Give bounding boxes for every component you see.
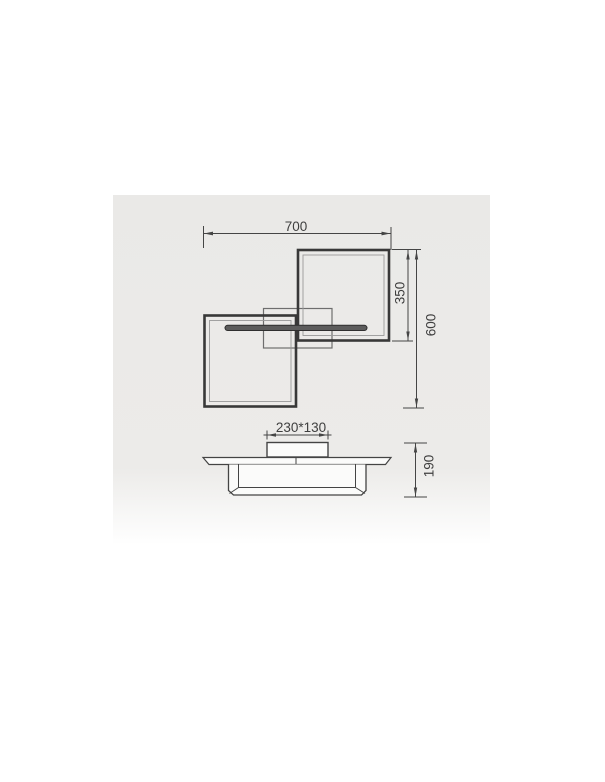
- dim-350-arrow-top: [406, 251, 409, 260]
- dim-700-arrow-left: [204, 232, 213, 236]
- dimension-right-side: [392, 250, 424, 409]
- dim-350-arrow-bottom: [406, 332, 409, 341]
- side-view: 230*130 190: [203, 420, 437, 497]
- canopy-side-view: [267, 443, 328, 458]
- dim-600-arrow-top: [415, 251, 418, 260]
- dim-190-arrow-bottom: [414, 488, 417, 497]
- light-bar: [225, 325, 367, 330]
- dim-700-arrow-right: [382, 232, 391, 236]
- dim-600-label: 600: [424, 314, 439, 337]
- technical-drawing: 700: [0, 0, 605, 782]
- lower-square-inner-edge: [210, 321, 292, 402]
- dim-canopy-arrow-left: [268, 433, 277, 437]
- dim-700-label: 700: [285, 219, 308, 234]
- ceiling-plate: [203, 458, 391, 465]
- dim-600-arrow-bottom: [415, 399, 418, 408]
- dim-canopy-label: 230*130: [276, 420, 326, 435]
- spec-sheet-canvas: 700: [0, 0, 605, 782]
- upper-square-inner-edge: [303, 255, 384, 336]
- frame-profile: [229, 465, 367, 496]
- dim-190-label: 190: [422, 455, 437, 478]
- frame-profile-outer: [229, 465, 367, 496]
- dim-190-arrow-top: [414, 444, 417, 453]
- dim-350-label: 350: [393, 282, 408, 305]
- top-view: 700: [204, 219, 439, 408]
